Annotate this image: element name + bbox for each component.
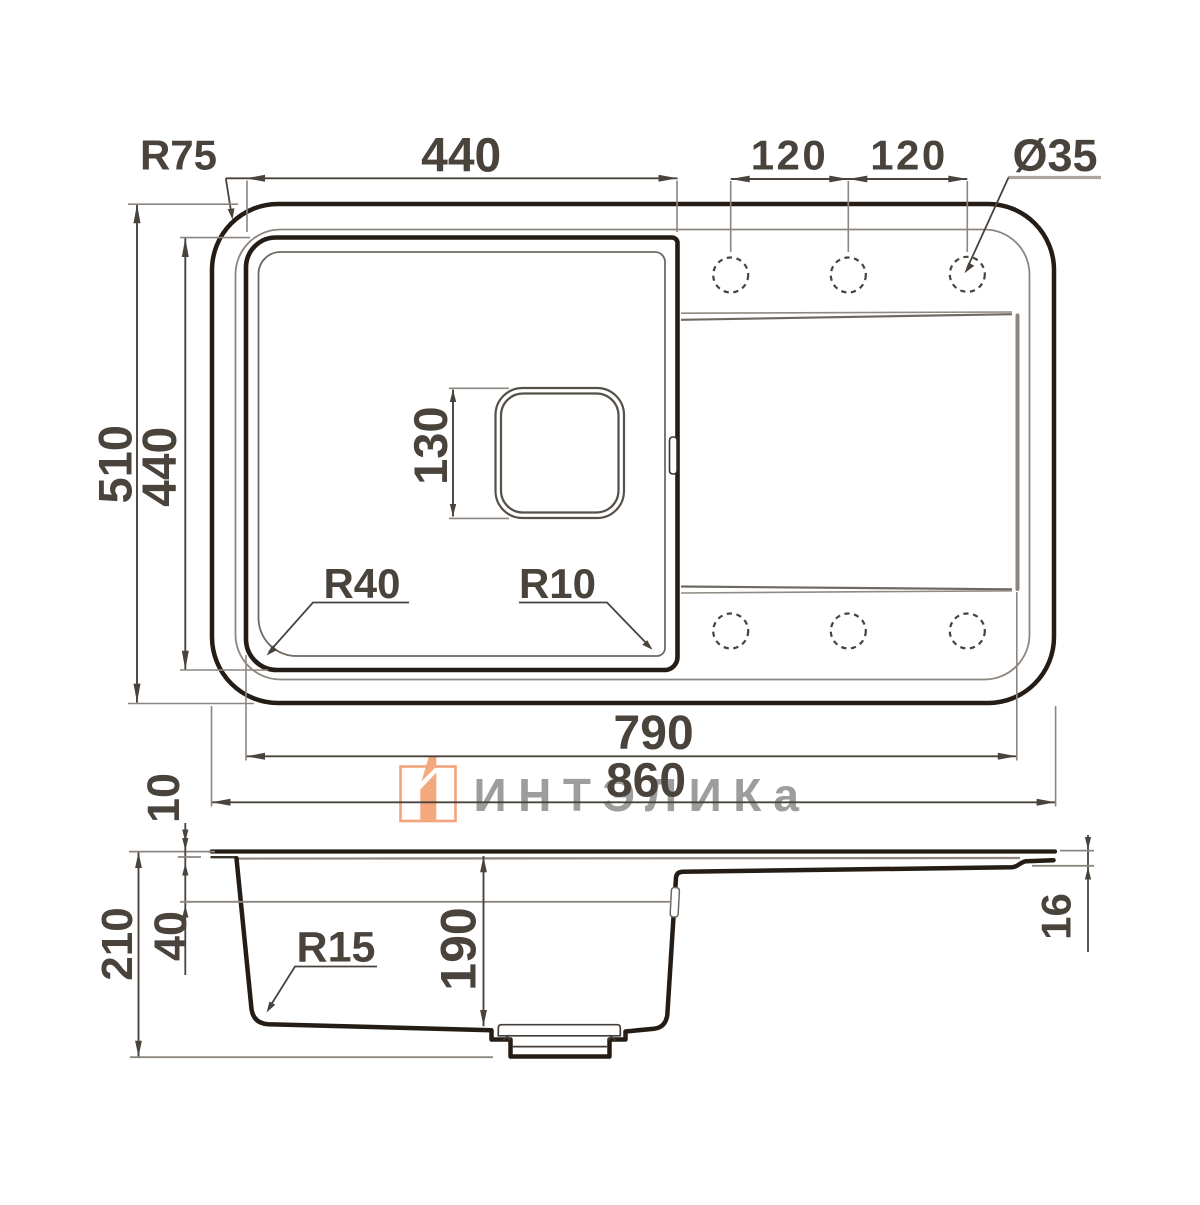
svg-text:10: 10 xyxy=(138,773,189,823)
svg-text:190: 190 xyxy=(431,907,487,990)
svg-text:120: 120 xyxy=(751,132,829,179)
svg-text:120: 120 xyxy=(870,132,948,179)
svg-text:860: 860 xyxy=(606,755,686,808)
svg-text:R15: R15 xyxy=(297,924,376,972)
svg-text:440: 440 xyxy=(134,427,187,507)
svg-text:130: 130 xyxy=(404,406,457,484)
svg-text:R40: R40 xyxy=(323,560,400,607)
svg-text:Ø35: Ø35 xyxy=(1012,130,1097,181)
svg-text:210: 210 xyxy=(93,907,142,980)
svg-text:790: 790 xyxy=(614,707,694,760)
svg-text:16: 16 xyxy=(1033,893,1080,940)
svg-text:40: 40 xyxy=(145,911,196,961)
svg-text:440: 440 xyxy=(421,130,501,183)
svg-text:R75: R75 xyxy=(140,132,217,179)
svg-text:R10: R10 xyxy=(519,560,596,607)
